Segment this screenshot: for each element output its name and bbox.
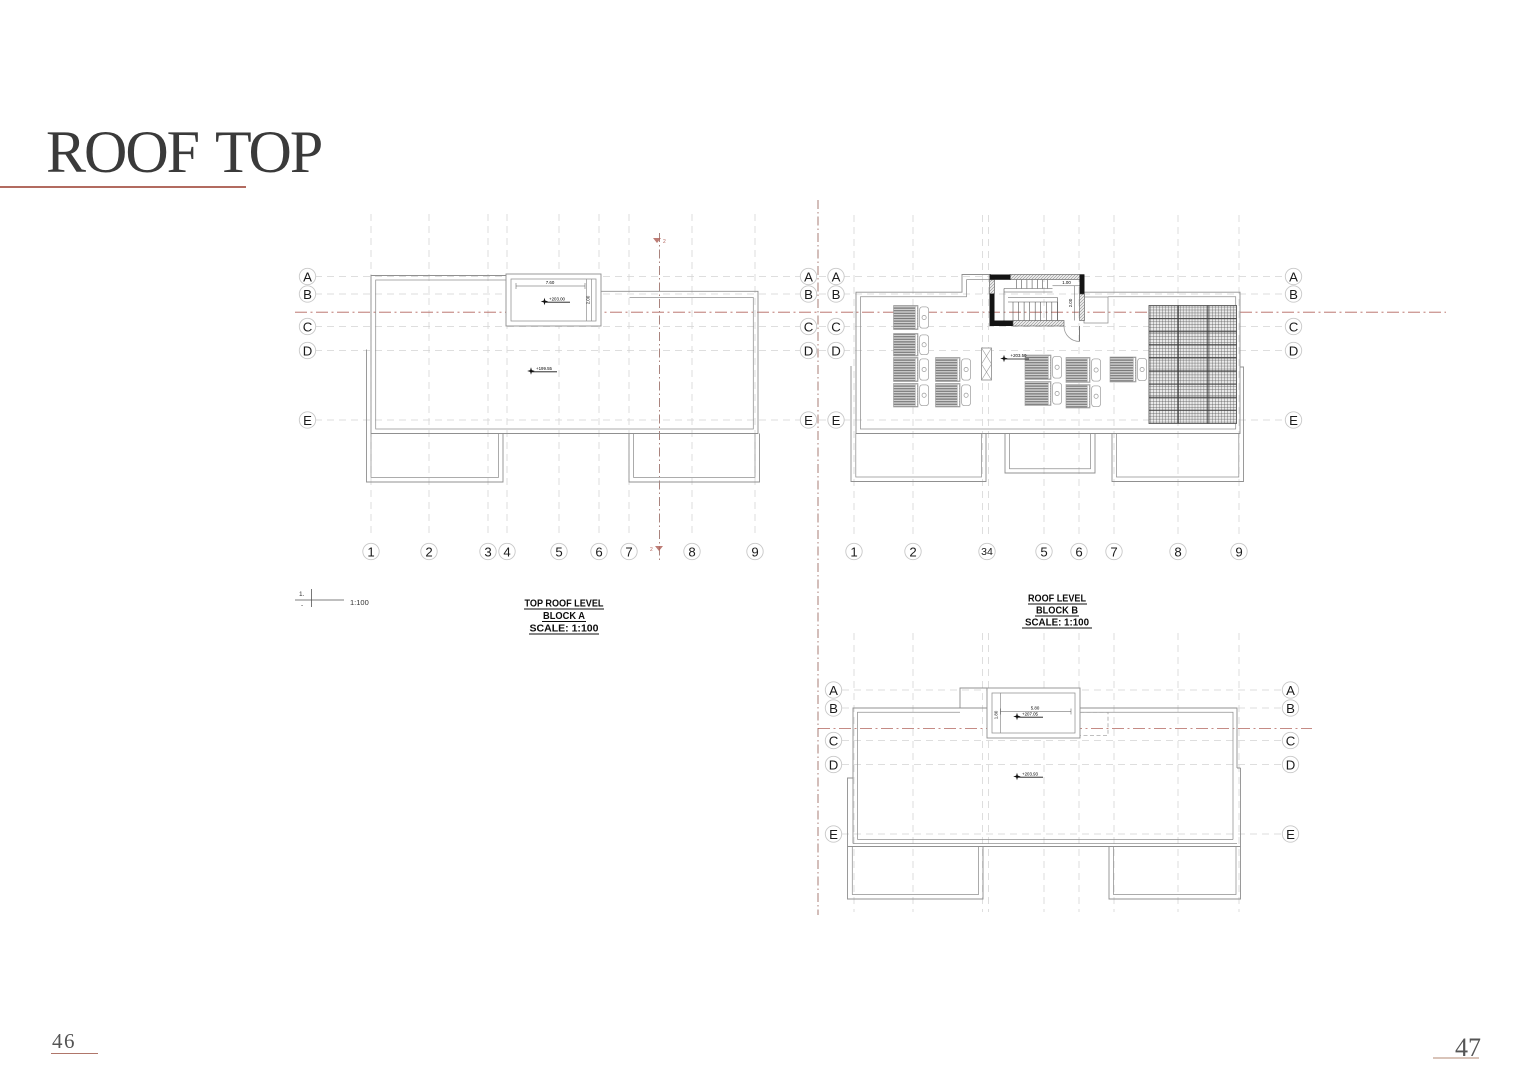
- svg-text:7: 7: [625, 545, 632, 560]
- svg-text:E: E: [303, 413, 312, 428]
- svg-text:2.00: 2.00: [586, 295, 591, 304]
- svg-text:9: 9: [751, 545, 758, 560]
- svg-text:A: A: [832, 270, 841, 285]
- svg-text:-: -: [301, 602, 303, 609]
- svg-text:C: C: [303, 320, 313, 335]
- svg-text:E: E: [1289, 413, 1298, 428]
- svg-text:C: C: [1289, 320, 1299, 335]
- svg-text:+203.00: +203.00: [549, 297, 566, 302]
- svg-text:BLOCK A: BLOCK A: [543, 610, 585, 622]
- svg-text:B: B: [804, 287, 813, 302]
- svg-text:BLOCK B: BLOCK B: [1036, 605, 1078, 617]
- svg-text:D: D: [1286, 758, 1296, 773]
- svg-text:+199.55: +199.55: [536, 366, 553, 371]
- svg-text:1: 1: [850, 545, 857, 560]
- svg-text:6: 6: [595, 545, 602, 560]
- svg-text:8: 8: [688, 545, 695, 560]
- svg-text:1:100: 1:100: [350, 598, 369, 607]
- svg-text:E: E: [829, 827, 838, 842]
- svg-text:C: C: [804, 320, 814, 335]
- svg-text:B: B: [832, 287, 841, 302]
- svg-text:1.80: 1.80: [994, 710, 999, 719]
- svg-text:5: 5: [555, 545, 562, 560]
- svg-text:2: 2: [909, 545, 916, 560]
- svg-text:A: A: [1289, 270, 1298, 285]
- svg-text:B: B: [829, 701, 838, 716]
- svg-text:D: D: [1289, 344, 1299, 359]
- svg-text:1: 1: [367, 545, 374, 560]
- svg-text:A: A: [1286, 683, 1295, 698]
- svg-text:C: C: [1286, 734, 1296, 749]
- svg-text:B: B: [1289, 287, 1298, 302]
- svg-text:7: 7: [1110, 545, 1117, 560]
- svg-text:5: 5: [1040, 545, 1047, 560]
- svg-text:E: E: [804, 413, 813, 428]
- svg-text:2: 2: [425, 545, 432, 560]
- svg-text:2: 2: [650, 547, 653, 553]
- svg-text:7.60: 7.60: [546, 280, 555, 285]
- svg-text:2: 2: [663, 239, 666, 245]
- svg-text:E: E: [1286, 827, 1295, 842]
- svg-text:E: E: [832, 413, 841, 428]
- svg-text:ROOF LEVEL: ROOF LEVEL: [1028, 593, 1087, 605]
- svg-text:4: 4: [503, 545, 510, 560]
- svg-text:B: B: [1286, 701, 1295, 716]
- svg-text:SCALE: 1:100: SCALE: 1:100: [530, 623, 599, 635]
- svg-text:1.: 1.: [299, 591, 305, 598]
- svg-text:+203.93: +203.93: [1022, 771, 1039, 776]
- svg-text:A: A: [303, 270, 312, 285]
- svg-text:TOP ROOF LEVEL: TOP ROOF LEVEL: [525, 598, 604, 610]
- svg-text:D: D: [829, 758, 839, 773]
- svg-text:D: D: [303, 344, 313, 359]
- svg-text:A: A: [829, 683, 838, 698]
- svg-text:8: 8: [1174, 545, 1181, 560]
- svg-text:+207.05: +207.05: [1022, 711, 1039, 716]
- svg-text:D: D: [804, 344, 814, 359]
- svg-text:D: D: [831, 344, 841, 359]
- svg-text:1.00: 1.00: [1062, 280, 1071, 285]
- svg-text:6: 6: [1075, 545, 1082, 560]
- svg-text:A: A: [804, 270, 813, 285]
- svg-text:2.00: 2.00: [1068, 298, 1073, 307]
- svg-text:9: 9: [1235, 545, 1242, 560]
- svg-text:SCALE: 1:100: SCALE: 1:100: [1025, 617, 1089, 629]
- svg-text:3: 3: [484, 545, 491, 560]
- svg-text:34: 34: [981, 546, 993, 558]
- svg-text:C: C: [831, 320, 841, 335]
- svg-text:B: B: [303, 287, 312, 302]
- svg-text:C: C: [829, 734, 839, 749]
- svg-text:5.80: 5.80: [1031, 706, 1040, 711]
- svg-text:+203.50: +203.50: [1011, 353, 1028, 358]
